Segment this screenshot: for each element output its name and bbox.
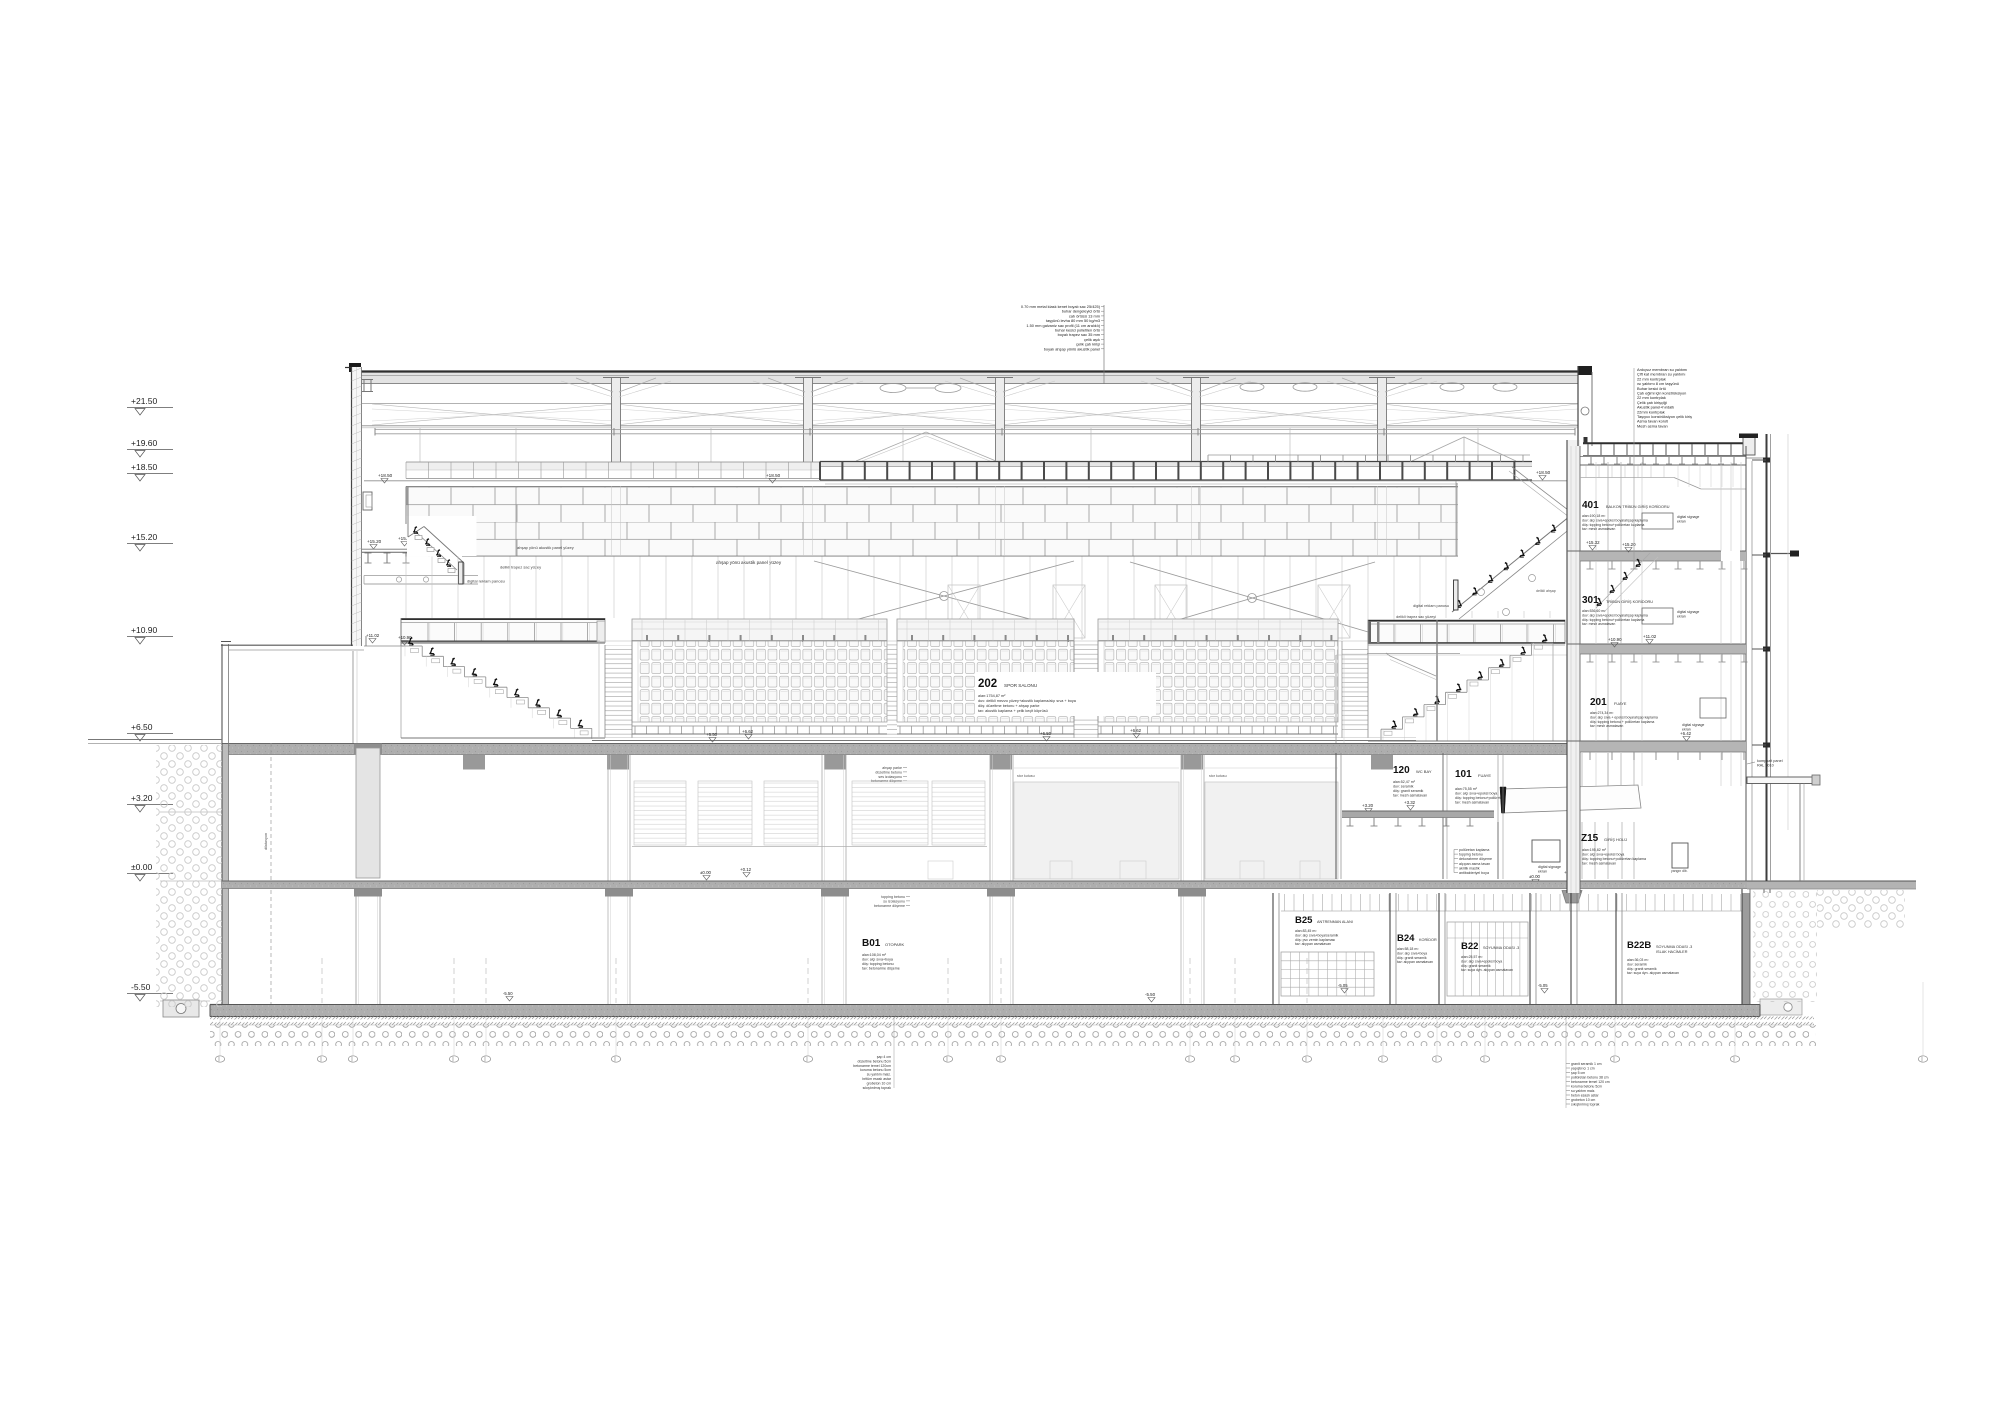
svg-text:döş: topping betonu: döş: topping betonu [862, 962, 894, 966]
svg-text:+6.50: +6.50 [706, 732, 718, 737]
svg-text:digital signage: digital signage [1538, 865, 1561, 869]
svg-text:+15.20: +15.20 [131, 532, 158, 542]
svg-text:duv: alçı sıva+epoksi boya: duv: alçı sıva+epoksi boya [1582, 853, 1624, 857]
svg-text:döş: granit seramik: döş: granit seramik [1461, 964, 1491, 968]
svg-text:duv: delikli mezzo yüzey+akust: duv: delikli mezzo yüzey+akustik kaplama… [978, 699, 1077, 703]
svg-text:-5.50: -5.50 [1145, 992, 1156, 997]
svg-text:±0.00: ±0.00 [1529, 874, 1541, 879]
svg-text:tav: mesh asmatavan: tav: mesh asmatavan [1582, 527, 1615, 531]
svg-text:betonarme temel 120cm: betonarme temel 120cm [853, 1064, 891, 1068]
svg-text:şap 5 cm: şap 5 cm [1571, 1071, 1585, 1075]
svg-text:duv: alçı sıva+epoksi boya: duv: alçı sıva+epoksi boya [1455, 792, 1497, 796]
svg-text:Z15: Z15 [1581, 833, 1599, 844]
svg-text:SOYUNMA ODASI -3: SOYUNMA ODASI -3 [1656, 945, 1692, 949]
svg-text:digital signage: digital signage [1677, 515, 1699, 519]
svg-text:+6.62: +6.62 [1130, 728, 1142, 733]
svg-text:ahşap yönü akustik panel yüzey: ahşap yönü akustik panel yüzey [517, 545, 574, 550]
svg-text:KORİDOR: KORİDOR [1419, 937, 1437, 942]
svg-text:digital reklam panosu: digital reklam panosu [1413, 604, 1449, 608]
svg-text:tav: alçıpan asmatavan: tav: alçıpan asmatavan [1397, 960, 1433, 964]
svg-text:202: 202 [978, 678, 997, 690]
svg-text:duv: seramik: duv: seramik [1393, 785, 1414, 789]
svg-text:301: 301 [1582, 595, 1599, 606]
svg-text:BALKON TRİBÜN GİRİŞ KORİDORU: BALKON TRİBÜN GİRİŞ KORİDORU [1606, 504, 1670, 509]
svg-text:+0.12: +0.12 [740, 867, 752, 872]
svg-text:dekoratırme döşeme: dekoratırme döşeme [1459, 857, 1492, 861]
svg-text:alan:83,45 m²: alan:83,45 m² [1295, 929, 1317, 933]
svg-text:+6.50: +6.50 [1040, 731, 1052, 736]
svg-text:britüm esaslı astar: britüm esaslı astar [862, 1077, 891, 1081]
svg-text:+6.50: +6.50 [131, 722, 153, 732]
svg-text:poliüretan kaplama: poliüretan kaplama [1459, 848, 1489, 852]
svg-text:alçıpan asma tavan: alçıpan asma tavan [1459, 862, 1490, 866]
svg-text:+3.20: +3.20 [131, 793, 153, 803]
svg-text:duv: alçı sıva+boya/seramik: duv: alçı sıva+boya/seramik [1295, 933, 1339, 937]
svg-text:döş: pvc zemin kaplaması: döş: pvc zemin kaplaması [1295, 938, 1335, 942]
svg-text:SPOR SALONU: SPOR SALONU [1004, 683, 1037, 688]
svg-text:201: 201 [1590, 697, 1607, 708]
svg-text:tav: alçıpan asmatavan: tav: alçıpan asmatavan [1295, 942, 1331, 946]
svg-text:+18.50: +18.50 [131, 462, 158, 472]
svg-text:+11.02: +11.02 [1643, 634, 1657, 639]
svg-text:şap 4 cm: şap 4 cm [877, 1055, 891, 1059]
svg-text:döş: topping betonu+poliüretan: döş: topping betonu+poliüretan kaplama [1582, 523, 1644, 527]
svg-text:ekran: ekran [1538, 869, 1547, 873]
svg-text:döş: granit seramik: döş: granit seramik [1393, 789, 1424, 793]
svg-text:±0.00: ±0.00 [700, 870, 712, 875]
svg-text:dilatasyon: dilatasyon [264, 833, 268, 850]
svg-text:grobeton 10 cm: grobeton 10 cm [1571, 1098, 1595, 1102]
svg-text:boyalı ahşap yönlü akustik pan: boyalı ahşap yönlü akustik panel [1044, 346, 1100, 351]
svg-text:B22: B22 [1461, 941, 1478, 952]
svg-text:alan:52,47 m²: alan:52,47 m² [1393, 780, 1416, 784]
svg-text:digital reklam panosu: digital reklam panosu [467, 579, 505, 584]
svg-text:B01: B01 [862, 938, 881, 949]
svg-text:duv: alçı sıva+epoksi boya/ahş: duv: alçı sıva+epoksi boya/ahşap kaplama [1582, 613, 1648, 617]
svg-text:ekran: ekran [1677, 520, 1686, 524]
svg-text:OTOPARK: OTOPARK [885, 942, 905, 947]
svg-text:+18.50: +18.50 [1536, 470, 1551, 475]
svg-text:koruma betonu 5cm: koruma betonu 5cm [860, 1068, 891, 1072]
svg-text:tav: mesh asmatavan: tav: mesh asmatavan [1590, 724, 1623, 728]
svg-text:WC BAY: WC BAY [1416, 769, 1432, 774]
svg-text:ahşap parke: ahşap parke [882, 766, 902, 770]
svg-text:topping betonu: topping betonu [881, 895, 905, 899]
svg-text:tav: suya dyn. alçıpan asmatav: tav: suya dyn. alçıpan asmatavan [1627, 971, 1679, 975]
svg-text:ANTRENMAN ALANI: ANTRENMAN ALANI [1317, 920, 1353, 924]
svg-text:B24: B24 [1397, 933, 1415, 944]
svg-text:tav: suya dyn. alçıpan asmatav: tav: suya dyn. alçıpan asmatavan [1461, 968, 1513, 972]
svg-text:sıkıştırılmış toprak: sıkıştırılmış toprak [1571, 1103, 1600, 1107]
svg-text:topping betonu: topping betonu [1459, 853, 1483, 857]
svg-text:sıkıştırılmış toprak: sıkıştırılmış toprak [863, 1086, 892, 1090]
svg-text:ses izolasyonu: ses izolasyonu [878, 775, 902, 779]
svg-text:döş: topping betonu+poliüretan: döş: topping betonu+poliüretan kaplama [1582, 857, 1646, 861]
svg-text:RAL 9010: RAL 9010 [1757, 764, 1774, 768]
svg-text:duv: alçı sıva+boya: duv: alçı sıva+boya [862, 958, 893, 962]
svg-text:duv: seramik: duv: seramik [1627, 962, 1647, 966]
svg-text:düzeltme betonu: düzeltme betonu [875, 770, 902, 774]
svg-text:401: 401 [1582, 500, 1599, 511]
svg-text:betonarme temel 120 cm: betonarme temel 120 cm [1571, 1080, 1610, 1084]
svg-text:120: 120 [1393, 765, 1410, 776]
svg-text:duv: alçı sıva+epoksi boya/ahş: duv: alçı sıva+epoksi boya/ahşap kaplama [1582, 518, 1648, 522]
svg-text:tav: akustik kaplama + çelik k: tav: akustik kaplama + çelik keçit köprü… [978, 709, 1048, 713]
svg-text:+11.02: +11.02 [366, 633, 380, 638]
svg-text:döş: granit seramik: döş: granit seramik [1627, 967, 1657, 971]
svg-text:antibakteriyel boya: antibakteriyel boya [1459, 871, 1489, 875]
svg-text:+6.42: +6.42 [1680, 731, 1692, 736]
svg-text:duv: alçı sıva+boya: duv: alçı sıva+boya [1397, 951, 1427, 955]
svg-text:-5.05: -5.05 [1338, 983, 1348, 988]
svg-text:Mesh asma tavan: Mesh asma tavan [1637, 423, 1668, 428]
svg-text:+15.32: +15.32 [1586, 540, 1600, 545]
svg-text:+3.32: +3.32 [1404, 800, 1416, 805]
svg-text:alan:274,34 m²: alan:274,34 m² [1590, 711, 1614, 715]
svg-text:alan:36,03 m²: alan:36,03 m² [1627, 958, 1649, 962]
svg-text:tav: mesh asmatavan: tav: mesh asmatavan [1393, 794, 1427, 798]
svg-text:delikli ahşap: delikli ahşap [1536, 589, 1556, 593]
svg-text:alan:108,04 m²: alan:108,04 m² [862, 953, 887, 957]
svg-text:+6.62: +6.62 [742, 729, 754, 734]
svg-text:alan:195,82 m²: alan:195,82 m² [1582, 848, 1607, 852]
svg-text:döş: topping betonu + poliüret: döş: topping betonu + poliüretan kaplama [1590, 720, 1654, 724]
svg-text:FUAYE: FUAYE [1478, 773, 1491, 778]
svg-text:su yalıtım malz.: su yalıtım malz. [1571, 1089, 1595, 1093]
svg-text:ahşap yönü akustik panel yüzey: ahşap yönü akustik panel yüzey [716, 560, 782, 565]
svg-text:+10.90: +10.90 [131, 625, 158, 635]
svg-text:tav: mesh asmatavan: tav: mesh asmatavan [1582, 622, 1615, 626]
svg-text:yangın dlb.: yangın dlb. [1671, 869, 1688, 873]
svg-text:+18.50: +18.50 [766, 473, 781, 478]
svg-text:delikli trapez sac yüzey: delikli trapez sac yüzey [500, 565, 541, 570]
svg-text:döş: granit seramik: döş: granit seramik [1397, 956, 1427, 960]
svg-text:stor kutusu: stor kutusu [1209, 774, 1227, 778]
svg-text:döş: düzeltme betonu + ahşap p: döş: düzeltme betonu + ahşap parke [978, 704, 1040, 708]
svg-text:B25: B25 [1295, 915, 1313, 926]
svg-text:-5.50: -5.50 [131, 982, 151, 992]
svg-text:TRİBÜN GİRİŞ KORİDORU: TRİBÜN GİRİŞ KORİDORU [1606, 599, 1653, 604]
svg-text:+10.90: +10.90 [1608, 637, 1622, 642]
svg-text:su izolasyonu: su izolasyonu [883, 899, 905, 903]
svg-text:koruma betonu 5cm: koruma betonu 5cm [1571, 1085, 1602, 1089]
svg-text:+21.50: +21.50 [131, 396, 158, 406]
svg-text:grobeton 10 cm: grobeton 10 cm [867, 1081, 891, 1085]
svg-text:tav: mesh asmatavan: tav: mesh asmatavan [1582, 862, 1616, 866]
svg-text:su yalıtım malz.: su yalıtım malz. [867, 1073, 891, 1077]
svg-text:tav: mesh asmatavan: tav: mesh asmatavan [1455, 801, 1489, 805]
svg-text:101: 101 [1455, 769, 1472, 780]
svg-text:granit seramik 1 cm: granit seramik 1 cm [1571, 1062, 1602, 1066]
svg-text:-5.50: -5.50 [503, 991, 513, 996]
svg-text:poliüretan betonu 38 cm: poliüretan betonu 38 cm [1571, 1076, 1609, 1080]
svg-text:+15.20: +15.20 [367, 539, 382, 544]
svg-text:digital signage: digital signage [1677, 610, 1699, 614]
svg-text:+19.60: +19.60 [131, 438, 158, 448]
svg-text:tav: betonarme döşeme: tav: betonarme döşeme [862, 967, 900, 971]
svg-text:delikli trapez sac yüzeyi: delikli trapez sac yüzeyi [1396, 615, 1436, 619]
svg-text:GİRİŞ HOLÜ: GİRİŞ HOLÜ [1604, 837, 1627, 842]
svg-text:ekran: ekran [1677, 615, 1686, 619]
svg-text:±0.00: ±0.00 [131, 862, 152, 872]
svg-text:stor kutusu: stor kutusu [1017, 774, 1035, 778]
svg-text:düzeltme betonu 5cm: düzeltme betonu 5cm [858, 1059, 892, 1063]
svg-text:-5.05: -5.05 [1538, 983, 1548, 988]
svg-text:betonarme döşeme: betonarme döşeme [874, 904, 905, 908]
svg-text:alan:58,18 m²: alan:58,18 m² [1397, 947, 1419, 951]
svg-text:ISLAK HACİMLER: ISLAK HACİMLER [1656, 949, 1688, 954]
svg-text:alan:1754,87 m²: alan:1754,87 m² [978, 694, 1006, 698]
svg-text:duv: alçı sıva + epoksi boya/a: duv: alçı sıva + epoksi boya/ahşap kapla… [1590, 715, 1658, 719]
svg-text:akrilik mastik: akrilik mastik [1459, 866, 1480, 870]
svg-text:B22B: B22B [1627, 940, 1651, 951]
svg-text:alan:25,57 m²: alan:25,57 m² [1461, 955, 1483, 959]
svg-text:alan:190,18 m²: alan:190,18 m² [1582, 514, 1606, 518]
svg-text:beton esaslı astar: beton esaslı astar [1571, 1094, 1599, 1098]
svg-text:duv: alçı sıva+epoksi boya: duv: alçı sıva+epoksi boya [1461, 959, 1502, 963]
svg-text:SOYUNMA ODASI -3: SOYUNMA ODASI -3 [1483, 946, 1519, 950]
svg-text:kompozit panel: kompozit panel [1757, 759, 1783, 763]
svg-text:+3.20: +3.20 [1362, 803, 1374, 808]
svg-text:digital signage: digital signage [1682, 723, 1704, 727]
svg-text:alan:75,55 m²: alan:75,55 m² [1455, 787, 1478, 791]
svg-text:döş: topping betonu+poliüretan: döş: topping betonu+poliüretan kaplama [1582, 618, 1644, 622]
svg-text:+18.50: +18.50 [378, 473, 393, 478]
svg-text:yapıştırıcı 1 cm: yapıştırıcı 1 cm [1571, 1067, 1595, 1071]
svg-text:alan:536,60 m²: alan:536,60 m² [1582, 609, 1606, 613]
svg-text:FUAYE: FUAYE [1614, 702, 1627, 706]
